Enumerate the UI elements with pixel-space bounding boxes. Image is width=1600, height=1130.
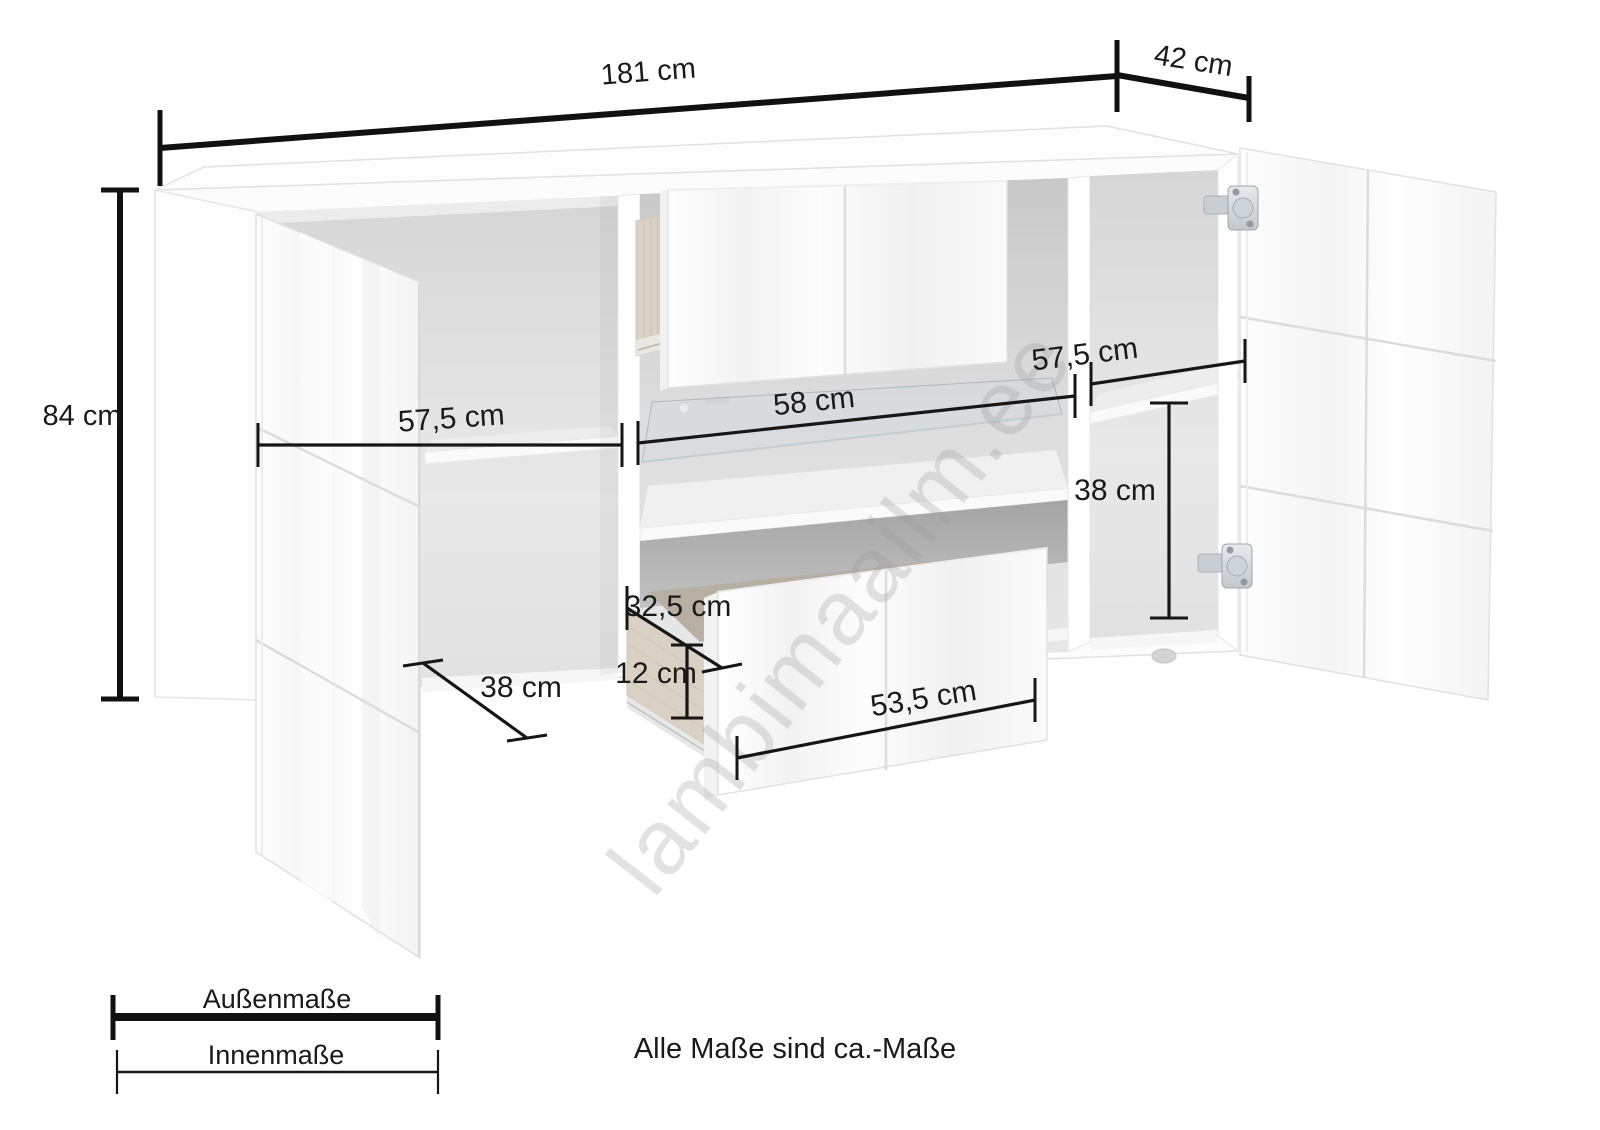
- hinge-screw: [1247, 221, 1254, 228]
- dim-total-height-label: 84 cm: [43, 400, 122, 432]
- hinge-screw: [1241, 579, 1248, 586]
- measurement-note: Alle Maße sind ca.-Maße: [634, 1033, 956, 1065]
- left-door-gloss-streak: [300, 232, 332, 922]
- left-door: [256, 214, 420, 958]
- sideboard: [155, 126, 1496, 958]
- left-door-panel: [256, 214, 420, 958]
- furniture-dimension-diagram: lambimaailm.ee 181 cm 42 cm 84 cm: [0, 0, 1600, 1130]
- hinge-cup: [1233, 198, 1253, 218]
- top-drawer-front-edge: [660, 190, 668, 391]
- legend-inner-label: Innenmaße: [208, 1040, 345, 1070]
- left-side-panel: [155, 190, 258, 700]
- right-door: [1198, 148, 1496, 700]
- left-door-gloss-streak: [362, 258, 380, 940]
- legend-outer-label: Außenmaße: [203, 984, 352, 1014]
- cabinet-foot: [1152, 649, 1176, 663]
- dim-left-depth-tick-end: [507, 735, 547, 741]
- hinge-screw: [1233, 189, 1240, 196]
- dim-total-depth-label: 42 cm: [1152, 39, 1235, 83]
- legend: Außenmaße Innenmaße: [113, 984, 438, 1094]
- dim-drawer-height-label: 12 cm: [615, 657, 697, 690]
- hinge-arm: [1198, 554, 1224, 572]
- hinge-screw: [1227, 547, 1234, 554]
- dim-total-height: 84 cm: [43, 190, 139, 699]
- dim-left-depth-label: 38 cm: [480, 671, 562, 704]
- hinge-cup: [1227, 556, 1247, 576]
- left-compartment-corner-shadow: [600, 196, 618, 676]
- diagram-canvas: lambimaailm.ee 181 cm 42 cm 84 cm: [0, 0, 1600, 1130]
- divider-middle-right: [1068, 176, 1090, 652]
- legend-inner: Innenmaße: [117, 1040, 438, 1094]
- hinge-arm: [1204, 196, 1230, 214]
- dim-total-depth: 42 cm: [1117, 39, 1249, 122]
- legend-outer: Außenmaße: [113, 984, 438, 1040]
- dim-drawer-depth-label: 32,5 cm: [625, 590, 732, 623]
- dim-total-width-label: 181 cm: [600, 53, 697, 92]
- dim-right-height-label: 38 cm: [1074, 474, 1156, 507]
- top-drawer-front: [668, 181, 1007, 388]
- top-drawer: [636, 181, 1007, 391]
